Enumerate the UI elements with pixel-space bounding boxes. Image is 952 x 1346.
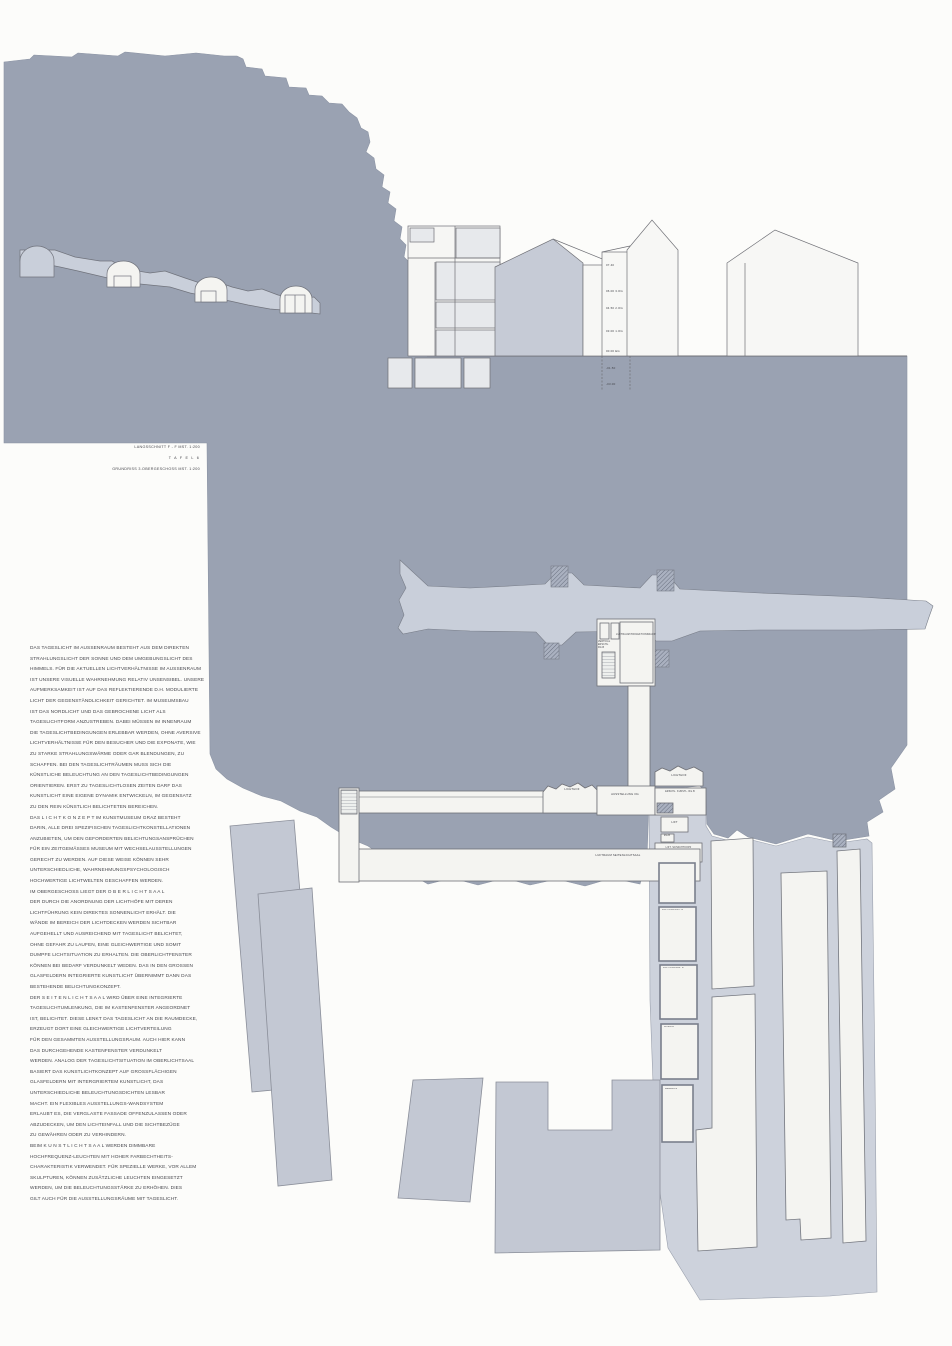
text-line: SCHAFFEN. BEI DEN TAGESLICHTRÄUMEN MUSS … [30,761,212,772]
stair-hatch [654,650,669,667]
label-rgb: RG.B [658,835,676,837]
label-shaft-segment: MEDIEN B [665,1088,693,1090]
text-line: STRAHLUNGSLICHT DER SONNE UND DEM UMGEBU… [30,655,212,666]
text-line: DUMPFE LICHTSITUATION ZU ERHALTEN. DIE O… [30,951,212,962]
text-line: CHARAKTERISTIK VERWENDET. FÜR SPEZIELLE … [30,1163,212,1174]
title-line-tafel: T A F E L 6 [100,457,200,461]
ausstellung-room [597,786,655,815]
text-line: KÖNNEN BEI BEDARF VERDUNKELT WEDEN. DAS … [30,962,212,973]
stair-run [341,790,357,814]
text-line: IST, BELICHTET. DIESE LENKT DAS TAGESLIC… [30,1015,212,1026]
text-line: KÜNSTLICHE BELEUCHTUNG AN DEN TAGESLICHT… [30,771,212,782]
text-line: ZU DEN REIN KÜNSTLICH BELICHTETEN BEREIC… [30,803,212,814]
stair-hatch [544,643,559,659]
text-line: DER S E I T E N L I C H T S A A L WIRD Ü… [30,994,212,1005]
slab-4 [495,1080,660,1253]
text-line: DARIN, ALLE DREI SPEZIFISCHEN TAGESLICHT… [30,824,212,835]
level-label: 00.00 EG [606,349,620,353]
title-block: LANGSSCHNITT F - F MST. 1:200 T A F E L … [100,446,200,472]
text-line: ERZEUGT DORT EINE GLEICHWERTIGE LICHTVER… [30,1025,212,1036]
text-line: FÜR DEN GESAMMTEN AUSSTELLUNGSRAUM. AUCH… [30,1036,212,1047]
text-line: DIE TAGESLICHTBEDINGUNGEN ERLEBBAR WERDE… [30,729,212,740]
label-lift: LIFT [661,820,688,824]
text-line: HOCHFREQUENZ-LEUCHTEN MIT HOHER FARBECHT… [30,1153,212,1164]
text-line: KUNSTLICHT EINE EIGENE DYNAMIK ENTWICKEL… [30,792,212,803]
context-buildings [230,820,660,1253]
text-line: LICHTFÜHRUNG KEIN DIREKTES SONNENLICHT E… [30,909,212,920]
text-line: OHNE GEFAHR ZU LAUFEN, EINE GLEICHWERTIG… [30,941,212,952]
level-label: 04.50 2.OG [606,306,623,310]
core-connector [628,686,650,791]
stair-run [602,652,615,678]
text-line: AUFGEHELLT UND AUSREICHEND MIT TAGESLICH… [30,930,212,941]
label-lichthof-right: LICHTHOF [658,773,700,777]
text-line: GLASFELDERN MIT INTERGRIERTEM KUNSTLICHT… [30,1078,212,1089]
shaft-hatch [833,834,846,847]
label-schachtkopf: LIFT. SCHACHTKOPF [655,847,702,849]
cavern-dome-1 [20,246,54,277]
text-line: ABZUDECKEN, UM DEN LICHTEINFALL UND DIE … [30,1121,212,1132]
text-line: ERLAUBT ES, DIE VERGLASTE FASSADE OFFENZ… [30,1110,212,1121]
stair-hatch [657,570,674,591]
house-gable-2 [727,230,858,356]
text-line: LICHT DER GEGENSTÄNDLICHKEIT GERICHTET. … [30,697,212,708]
text-line: MACHT. EIN FLEXIBLES AUSSTELLUNGS-WANDSY… [30,1100,212,1111]
lighting-concept-text: DAS TAGESLICHT IM AUSSENRAUM BESTEHT AUS… [30,644,212,1205]
label-shaft-segment: LÜFTUNG MGT. B [662,909,694,911]
text-line: WERDEN, UM DIE BELEUCHTUNGSSTÄRKE ZU ERH… [30,1184,212,1195]
text-line: BESTEHENDE BELICHTUNGKONZEPT. [30,983,212,994]
text-line: ZU STARKE STRAHLUNGSWÄRME ODER GAR BLEND… [30,750,212,761]
text-line: DAS DURCHGEHENDE KASTENFENSTER VERDUNKEL… [30,1047,212,1058]
text-line: BASIERT DAS KUNSTLICHTKONZEPT AUF GROSSF… [30,1068,212,1079]
architecture-panel: LANGSSCHNITT F - F MST. 1:200 T A F E L … [0,0,952,1346]
text-line: HOCHWERTIGE LICHTWELTEN GESCHAFFEN WERDE… [30,877,212,888]
label-lichthof-left: LICHTHOF [549,787,595,791]
text-line: UNTERSCHIEDLICHE BELEUCHTUNGSDICHTEN LES… [30,1089,212,1100]
label-vertikal-erschliessung: VERTIKAL ERSCHL. RG.B [598,641,613,650]
text-line: HIMMELS. FÜR DIE AKTUELLEN LICHTVERHÄLTN… [30,665,212,676]
text-line: WÄNDE IM BEREICH DER LICHTDECKEN WERDEN … [30,919,212,930]
text-line: ANZUBIETEN, UM DEN GEFORDERTEN BELICHTUN… [30,835,212,846]
text-line: UNTERSCHIEDLICHE, WAHRNEHMUNGSPSYCHOLOGI… [30,866,212,877]
label-ausstellung: AUSSTELLUNG OG [588,792,662,796]
label-shaft-segment: KLIMA B [664,1026,696,1028]
basement-room [464,358,490,388]
room-strip [781,871,831,1240]
slab-2 [258,888,332,1186]
level-label: -01.50 [606,366,615,370]
text-line: BEIM K U N S T L I C H T S A A L WERDEN … [30,1142,212,1153]
text-line: ZU GEWÄHREN ODER ZU VERHINDERN. [30,1131,212,1142]
text-line: FÜR EIN ZEITGEMÄSSES MUSEUM MIT WECHSELA… [30,845,212,856]
level-label: 06.00 3.OG [606,289,623,293]
label-luftraum-seitenlichtsaal: LUFTRAUM SEITENLICHTSAAL [563,853,673,857]
text-line: IST UNSERE VISUELLE WAHRNEHMUNG RELATIV … [30,676,212,687]
text-line: ORIENTIEREN. ERST ZU TAGESLICHTLOSEN ZEI… [30,782,212,793]
label-shaft-segment: LÜFTUNG ABL. B [663,967,695,969]
text-line: GILT AUCH FÜR DIE AUSSTELLUNGSRÄUME MIT … [30,1195,212,1206]
title-line-section: LANGSSCHNITT F - F MST. 1:200 [100,446,200,450]
cut-building [495,239,583,356]
title-line-grundriss: GRUNDRISS 3.OBERGESCHOSS MST. 1:200 [100,468,200,472]
slab-3 [398,1078,483,1202]
level-label: -03.00 [606,382,615,386]
text-line: IM OBERGESCHOSS LIEGT DER O B E R L I C … [30,888,212,899]
text-line: DAS TAGESLICHT IM AUSSENRAUM BESTEHT AUS… [30,644,212,655]
level-label: 03.00 1.OG [606,329,623,333]
text-line: IST DAS NORDLICHT UND DAS GEBROCHENE LIC… [30,708,212,719]
label-erschliessung: ERSCHL. KUNSTL. RG.B [656,791,704,793]
text-line: AUFMERKSAMKEIT IST AUF DAS REFLEKTIEREND… [30,686,212,697]
text-line: WERDEN. ANALOG DER TAGESLICHTSITUATION I… [30,1057,212,1068]
text-line: DER DURCH DIE ANORDNUNG DER LICHTHÖFE MI… [30,898,212,909]
text-line: LICHTVERHÄLTNISSE FÜR DEN BESUCHER UND D… [30,739,212,750]
text-line: TAGESLICHTUMLENKUNG, DIE IM KASTENFENSTE… [30,1004,212,1015]
text-line: TAGESLICHTFORM ANZUSTREBEN. DABEI MÜSSEN… [30,718,212,729]
basement-room [415,358,461,388]
text-line: DAS L I C H T K O N Z E P T IM KUNSTMUSE… [30,814,212,825]
stair-run [657,803,673,813]
text-line: GERECHT ZU WERDEN. AUF DIESE WEISE KÖNNE… [30,856,212,867]
house-gable-1 [627,220,678,356]
room-strip [711,838,754,989]
text-line: GLASFELDERN INTEGRIERTE KUNSTLICHT ÜBERN… [30,972,212,983]
text-line: SKULPTUREN, KÖNNEN ZUSÄTZLICHE LEUCHTEN … [30,1174,212,1185]
projection-void [620,622,653,683]
label-luftraum-projektionsraum: LUFTRAUM PROJEKTIONSRAUM [616,634,656,636]
level-label: 07.40 [606,263,614,267]
stair-hatch [551,566,568,587]
basement-room [388,358,412,388]
